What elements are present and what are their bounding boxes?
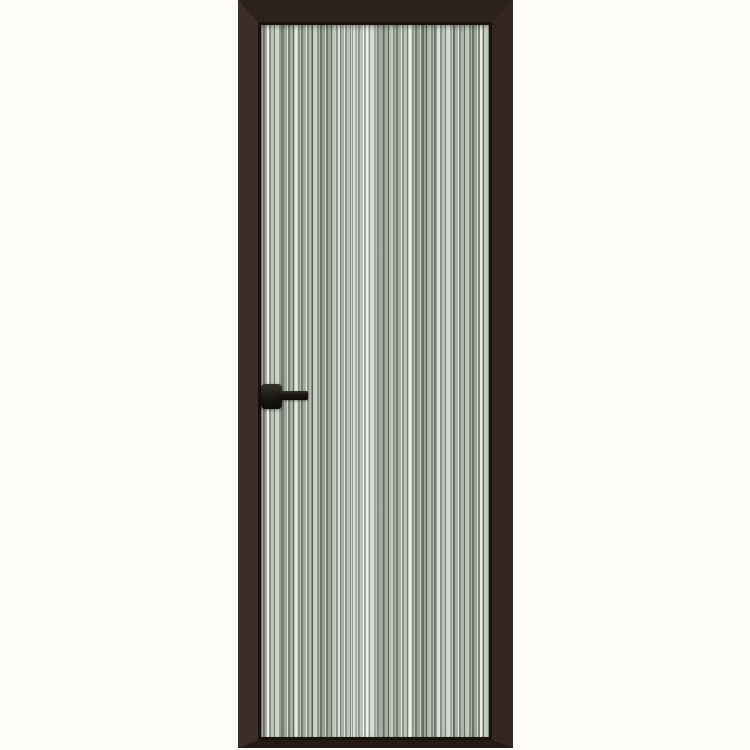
door-frame <box>238 0 513 748</box>
glass-panel <box>258 22 492 740</box>
product-photo-background <box>0 0 750 750</box>
glazing-bead-line <box>258 22 492 740</box>
